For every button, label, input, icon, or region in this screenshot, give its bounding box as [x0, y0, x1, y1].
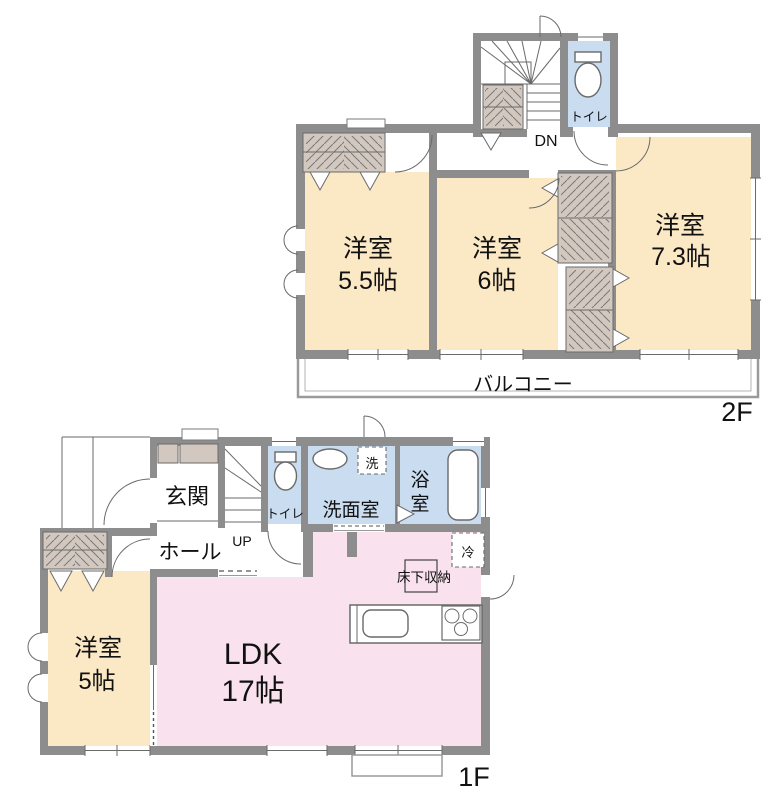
awning-window — [284, 270, 305, 298]
floor-1f: 玄関 ホール UP トイレ 洗面室 洗 浴 室 冷 床下収納 LDK 17帖 洋… — [28, 416, 514, 792]
toilet-fixture-1f — [275, 452, 297, 490]
toilet-window — [578, 33, 603, 41]
back-door-arc — [364, 416, 385, 437]
entrance-door-gap — [150, 478, 157, 523]
stairs-dn-label: DN — [534, 133, 557, 150]
entrance-window — [182, 429, 218, 440]
bedroom-5-slider — [150, 665, 157, 746]
bedroom-5-size: 5帖 — [78, 668, 115, 695]
stairs-up-label: UP — [232, 533, 251, 549]
shoe-cabinet — [180, 444, 218, 463]
kitchen-counter — [350, 605, 482, 643]
floor-2f-label: 2F — [721, 397, 753, 427]
bedroom-6-type: 洋室 — [472, 235, 522, 263]
ldk-back-door-gap — [481, 575, 490, 597]
underfloor-storage-label: 床下収納 — [397, 570, 451, 585]
kitchen-sink — [363, 610, 408, 637]
awning-window — [28, 633, 48, 661]
bedroom-7-3-size: 7.3帖 — [651, 243, 711, 271]
stove — [442, 606, 480, 640]
balcony-label: バルコニー — [473, 374, 573, 396]
door-arc-toilet-1f — [268, 531, 301, 564]
entrance-door-arc — [104, 479, 150, 525]
window — [453, 437, 484, 446]
floor-2f: 洋室 5.5帖 洋室 6帖 洋室 7.3帖 トイレ DN バルコニー 2F — [284, 16, 761, 427]
awning-window — [28, 674, 48, 702]
washroom-label: 洗面室 — [322, 499, 379, 521]
toilet-2f-label: トイレ — [570, 110, 608, 124]
window — [750, 178, 761, 300]
door-arc-toilet-2f — [574, 131, 608, 165]
floor-plan: 洋室 5.5帖 洋室 6帖 洋室 7.3帖 トイレ DN バルコニー 2F — [0, 0, 777, 805]
floor-plan-page: 洋室 5.5帖 洋室 6帖 洋室 7.3帖 トイレ DN バルコニー 2F — [0, 0, 777, 805]
window — [440, 349, 523, 360]
window — [348, 349, 408, 360]
ldk-size: 17帖 — [221, 675, 284, 708]
window — [267, 745, 327, 756]
entrance-label: 玄関 — [165, 484, 209, 509]
bedroom-7-3-type: 洋室 — [655, 212, 705, 240]
bedroom-5-5-type: 洋室 — [343, 235, 393, 263]
ldk-type: LDK — [224, 638, 282, 671]
fridge-label: 冷 — [461, 545, 474, 560]
bathroom-window — [481, 488, 490, 517]
bedroom-6-floor — [437, 178, 558, 350]
hall-opening — [218, 569, 258, 577]
window — [640, 349, 738, 360]
window — [272, 437, 296, 446]
bathroom-label-2: 室 — [410, 493, 429, 515]
bedroom-5-5-size: 5.5帖 — [338, 267, 398, 295]
bedroom-6-size: 6帖 — [478, 267, 517, 295]
floor-1f-label: 1F — [458, 762, 490, 792]
hall-label: ホール — [159, 541, 222, 564]
shoe-cabinet — [158, 444, 178, 463]
window — [347, 119, 385, 128]
door-arc-bedroom-5-5 — [395, 135, 432, 172]
awning-window — [284, 226, 305, 254]
stairs-1f — [225, 446, 261, 528]
toilet-fixture-2f — [575, 52, 601, 97]
bathtub — [448, 450, 478, 520]
terrace-step — [352, 755, 442, 776]
porch — [62, 437, 150, 528]
window — [85, 745, 150, 756]
closet-stairs-2f — [481, 85, 523, 150]
toilet-1f-label: トイレ — [266, 507, 304, 521]
washroom-slider — [333, 524, 385, 532]
bathroom-label-1: 浴 — [410, 469, 429, 491]
ldk-back-door-arc — [490, 575, 514, 599]
bedroom-5-type: 洋室 — [74, 635, 122, 662]
washer-label: 洗 — [365, 456, 378, 471]
washbasin — [313, 449, 347, 469]
